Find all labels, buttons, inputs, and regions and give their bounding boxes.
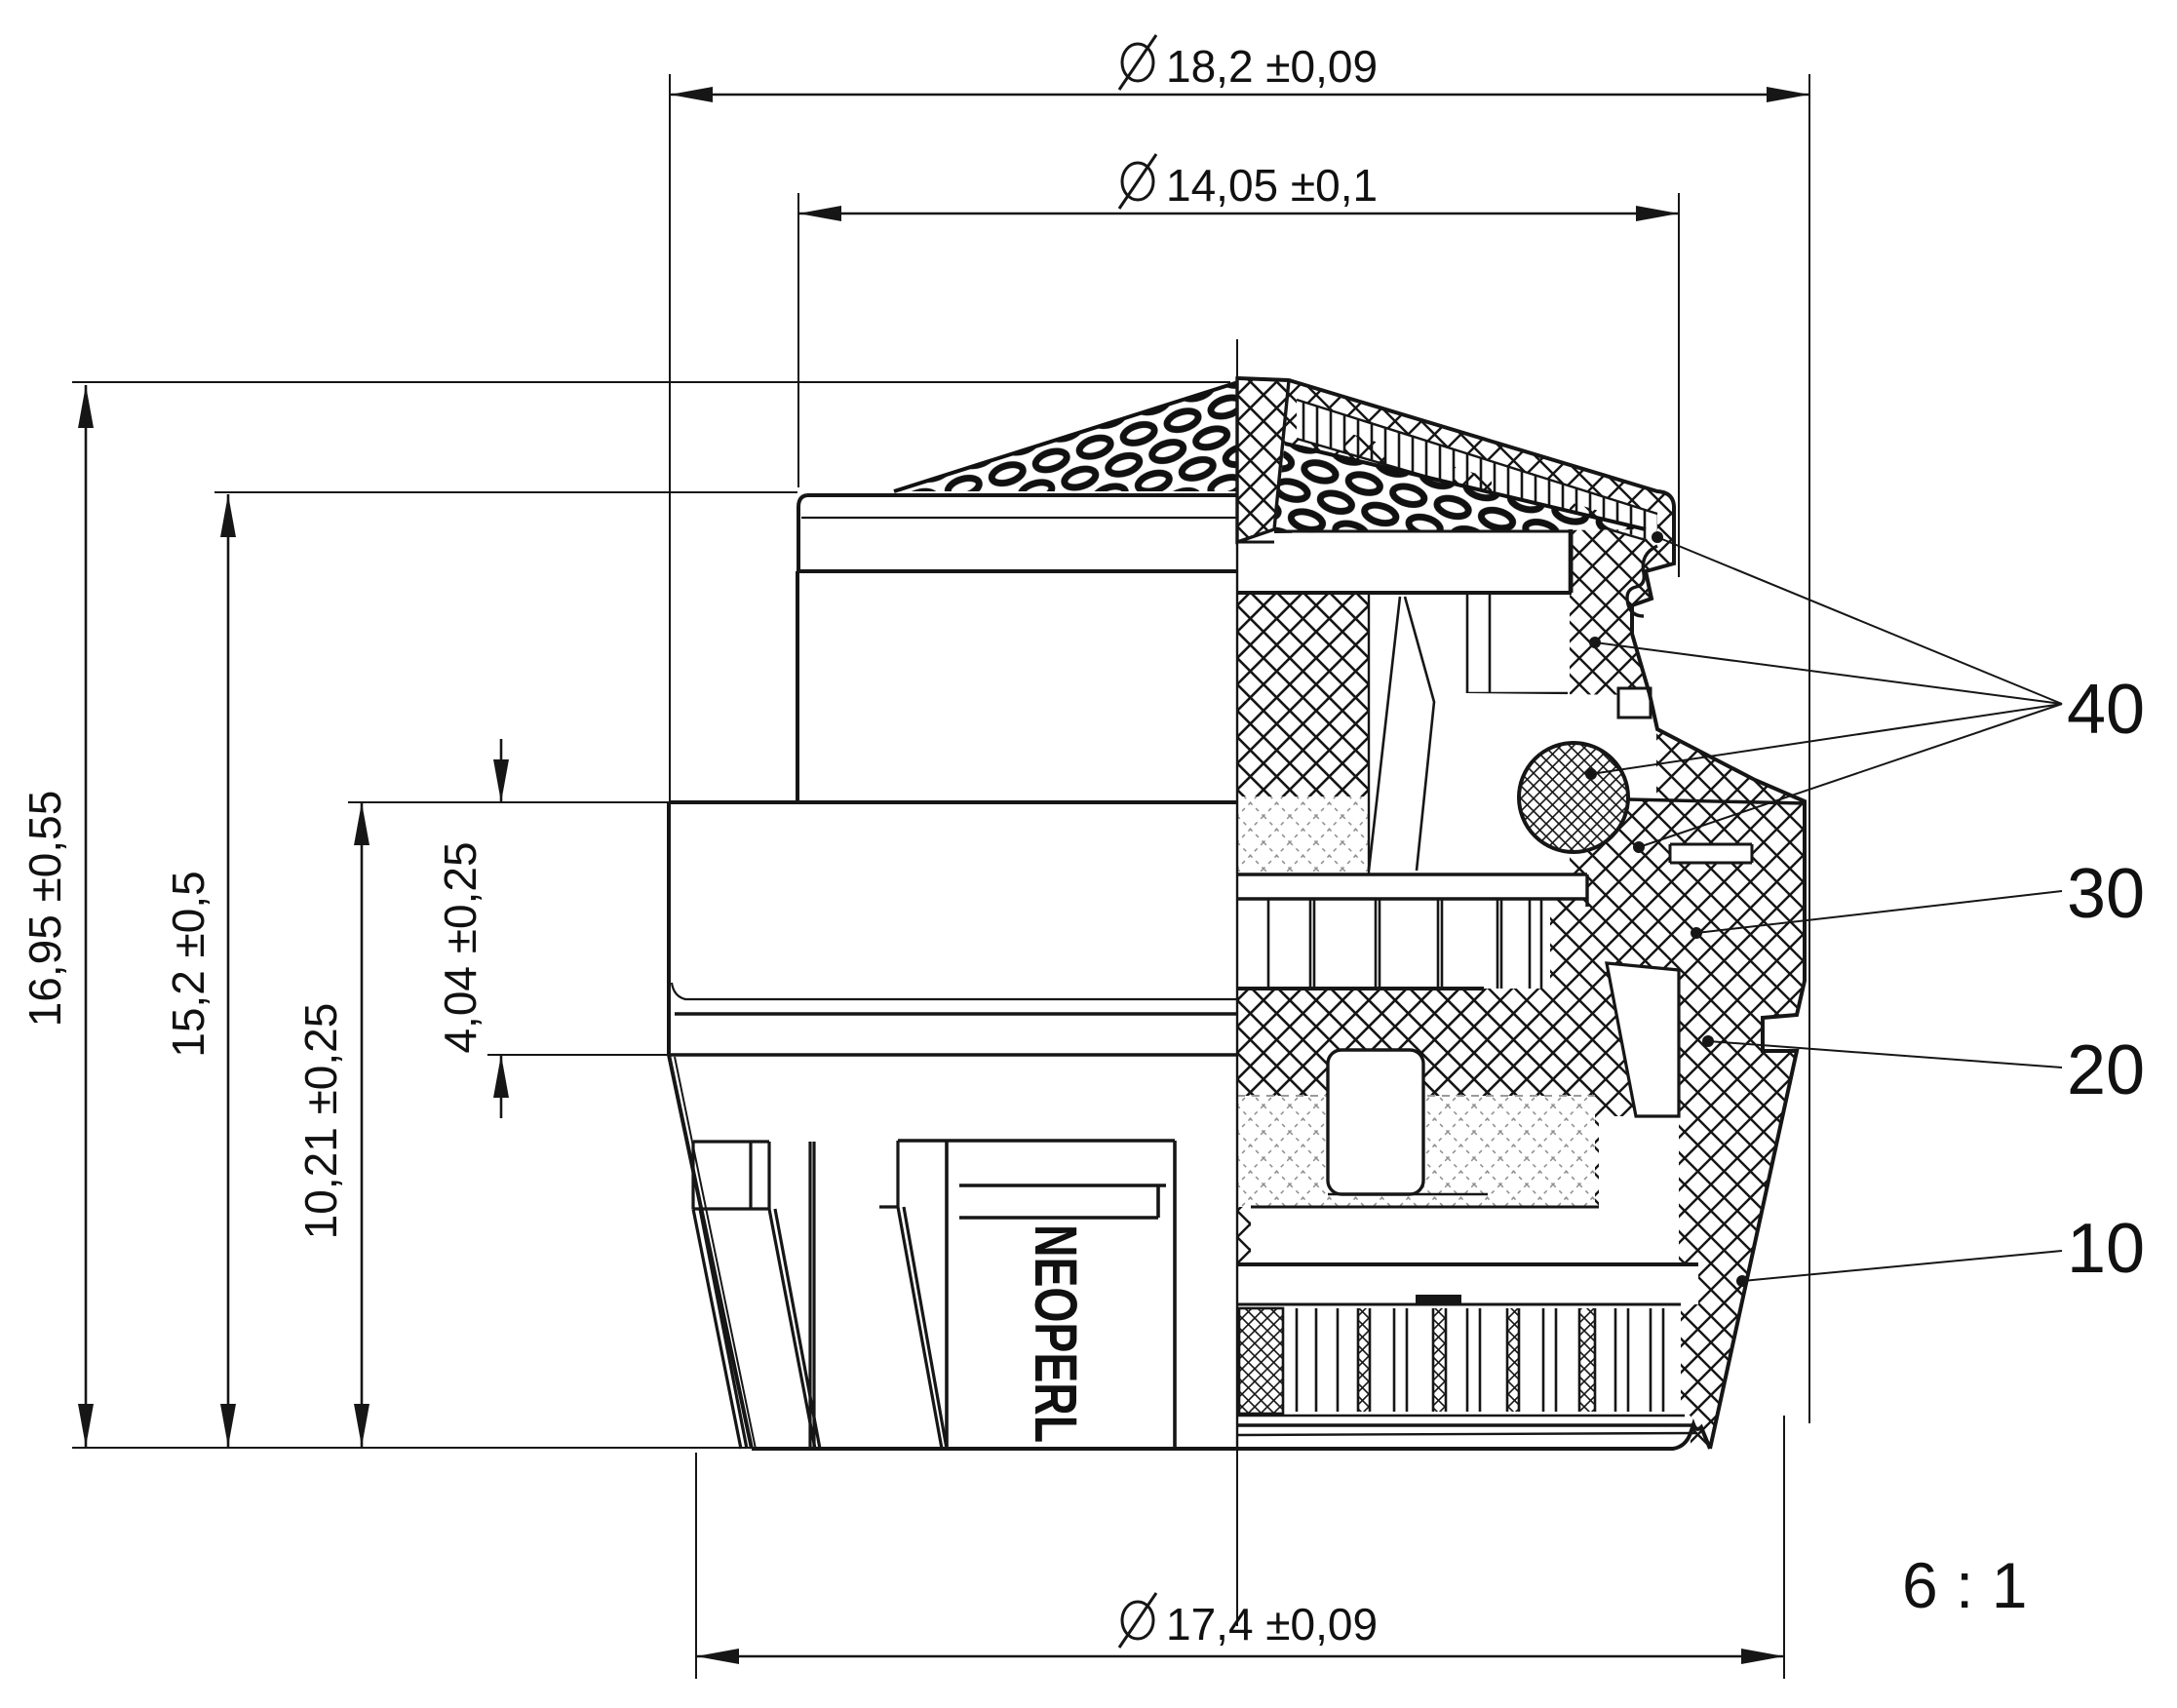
- svg-text:16,95 ±0,55: 16,95 ±0,55: [19, 791, 70, 1028]
- svg-text:20: 20: [2067, 1031, 2145, 1109]
- svg-text:10,21 ±0,25: 10,21 ±0,25: [295, 1003, 346, 1240]
- svg-text:4,04 ±0,25: 4,04 ±0,25: [435, 841, 486, 1053]
- svg-text:10: 10: [2067, 1210, 2145, 1288]
- svg-text:17,4 ±0,09: 17,4 ±0,09: [1166, 1599, 1378, 1650]
- svg-text:40: 40: [2067, 671, 2145, 749]
- svg-text:14,05 ±0,1: 14,05 ±0,1: [1166, 160, 1378, 211]
- svg-text:15,2 ±0,5: 15,2 ±0,5: [163, 871, 214, 1058]
- svg-text:6 : 1: 6 : 1: [1902, 1549, 2027, 1621]
- svg-text:NEOPERL: NEOPERL: [1023, 1224, 1089, 1443]
- svg-text:30: 30: [2067, 855, 2145, 933]
- svg-text:18,2 ±0,09: 18,2 ±0,09: [1166, 41, 1378, 92]
